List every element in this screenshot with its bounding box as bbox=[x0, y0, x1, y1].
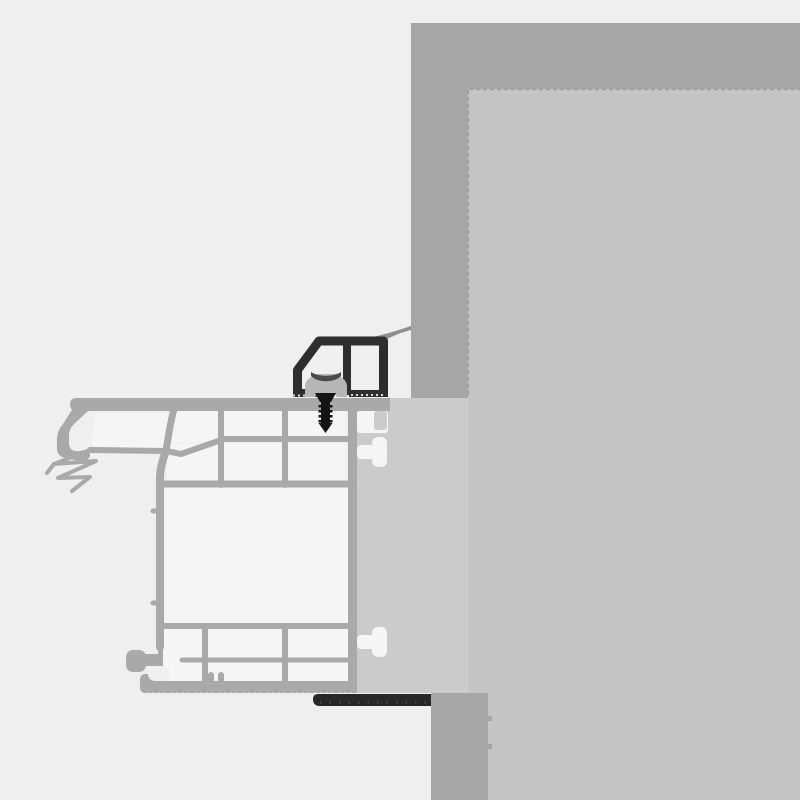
t-slot-lower-bar bbox=[357, 635, 382, 649]
chamber-bottom-notch bbox=[182, 666, 192, 678]
t-slot-upper-bar bbox=[357, 445, 382, 459]
boss-rib-1 bbox=[208, 672, 214, 683]
base-seal-strip bbox=[313, 694, 431, 706]
gap-filler bbox=[357, 398, 469, 693]
profile-top-bar bbox=[70, 398, 390, 411]
glazing-ledge bbox=[90, 450, 166, 451]
screw-thread bbox=[319, 415, 333, 418]
screw-thread bbox=[319, 420, 333, 423]
gap-hook-stub bbox=[374, 411, 387, 430]
wall-fill bbox=[468, 89, 800, 800]
wall-band-below-sill bbox=[431, 693, 488, 800]
chamber-top-left bbox=[92, 413, 170, 449]
wall-band-notch bbox=[488, 744, 492, 749]
profile-right-wall bbox=[348, 398, 357, 693]
screw-thread bbox=[319, 410, 333, 413]
wall-section bbox=[411, 23, 800, 800]
profile-left-tab-link bbox=[138, 654, 164, 666]
cross-section-diagram bbox=[0, 0, 800, 800]
screw-thread bbox=[319, 405, 333, 408]
base-seal-strip-body bbox=[313, 694, 431, 706]
chamber-main bbox=[165, 487, 348, 624]
diagram-svg bbox=[0, 0, 800, 800]
wall-band-notch bbox=[488, 716, 492, 721]
boss-rib-2 bbox=[218, 672, 224, 683]
bottom-hook-cavity bbox=[148, 666, 170, 681]
